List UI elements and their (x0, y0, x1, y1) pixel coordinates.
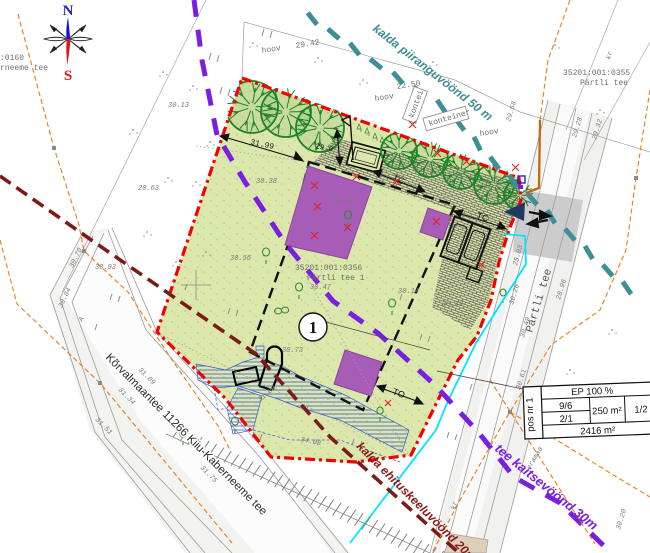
svg-text:2/1: 2/1 (559, 414, 573, 425)
svg-text:35201:001:0356: 35201:001:0356 (295, 264, 362, 273)
svg-text:20.63: 20.63 (138, 185, 159, 193)
svg-text:1: 1 (309, 318, 318, 337)
svg-text:30.48: 30.48 (442, 301, 463, 309)
svg-text:rneeme tee: rneeme tee (0, 64, 48, 73)
svg-text:Pärtli tee 1: Pärtli tee 1 (307, 274, 365, 283)
svg-text:30.73: 30.73 (282, 347, 303, 355)
svg-text::0160: :0160 (0, 54, 24, 63)
svg-text:30.38: 30.38 (256, 178, 277, 186)
svg-text:35201:001:0355: 35201:001:0355 (563, 69, 630, 78)
svg-text:N: N (63, 3, 74, 19)
svg-text:Pärtli tee: Pärtli tee (580, 79, 628, 88)
svg-text:30.93: 30.93 (95, 264, 116, 272)
svg-text:9/6: 9/6 (559, 401, 573, 412)
svg-text:30.56: 30.56 (230, 255, 251, 263)
svg-text:S: S (64, 68, 72, 84)
svg-text:30.14: 30.14 (398, 288, 419, 296)
svg-text:30.47: 30.47 (310, 284, 332, 292)
svg-text:30.13: 30.13 (168, 102, 189, 110)
svg-text:1/2: 1/2 (634, 404, 648, 415)
svg-text:250 m²: 250 m² (592, 405, 622, 417)
svg-text:EP 100 %: EP 100 % (571, 386, 614, 399)
svg-text:30.26: 30.26 (333, 198, 354, 206)
svg-text:2416 m²: 2416 m² (580, 425, 615, 437)
svg-text:pos nr 1: pos nr 1 (524, 397, 536, 432)
